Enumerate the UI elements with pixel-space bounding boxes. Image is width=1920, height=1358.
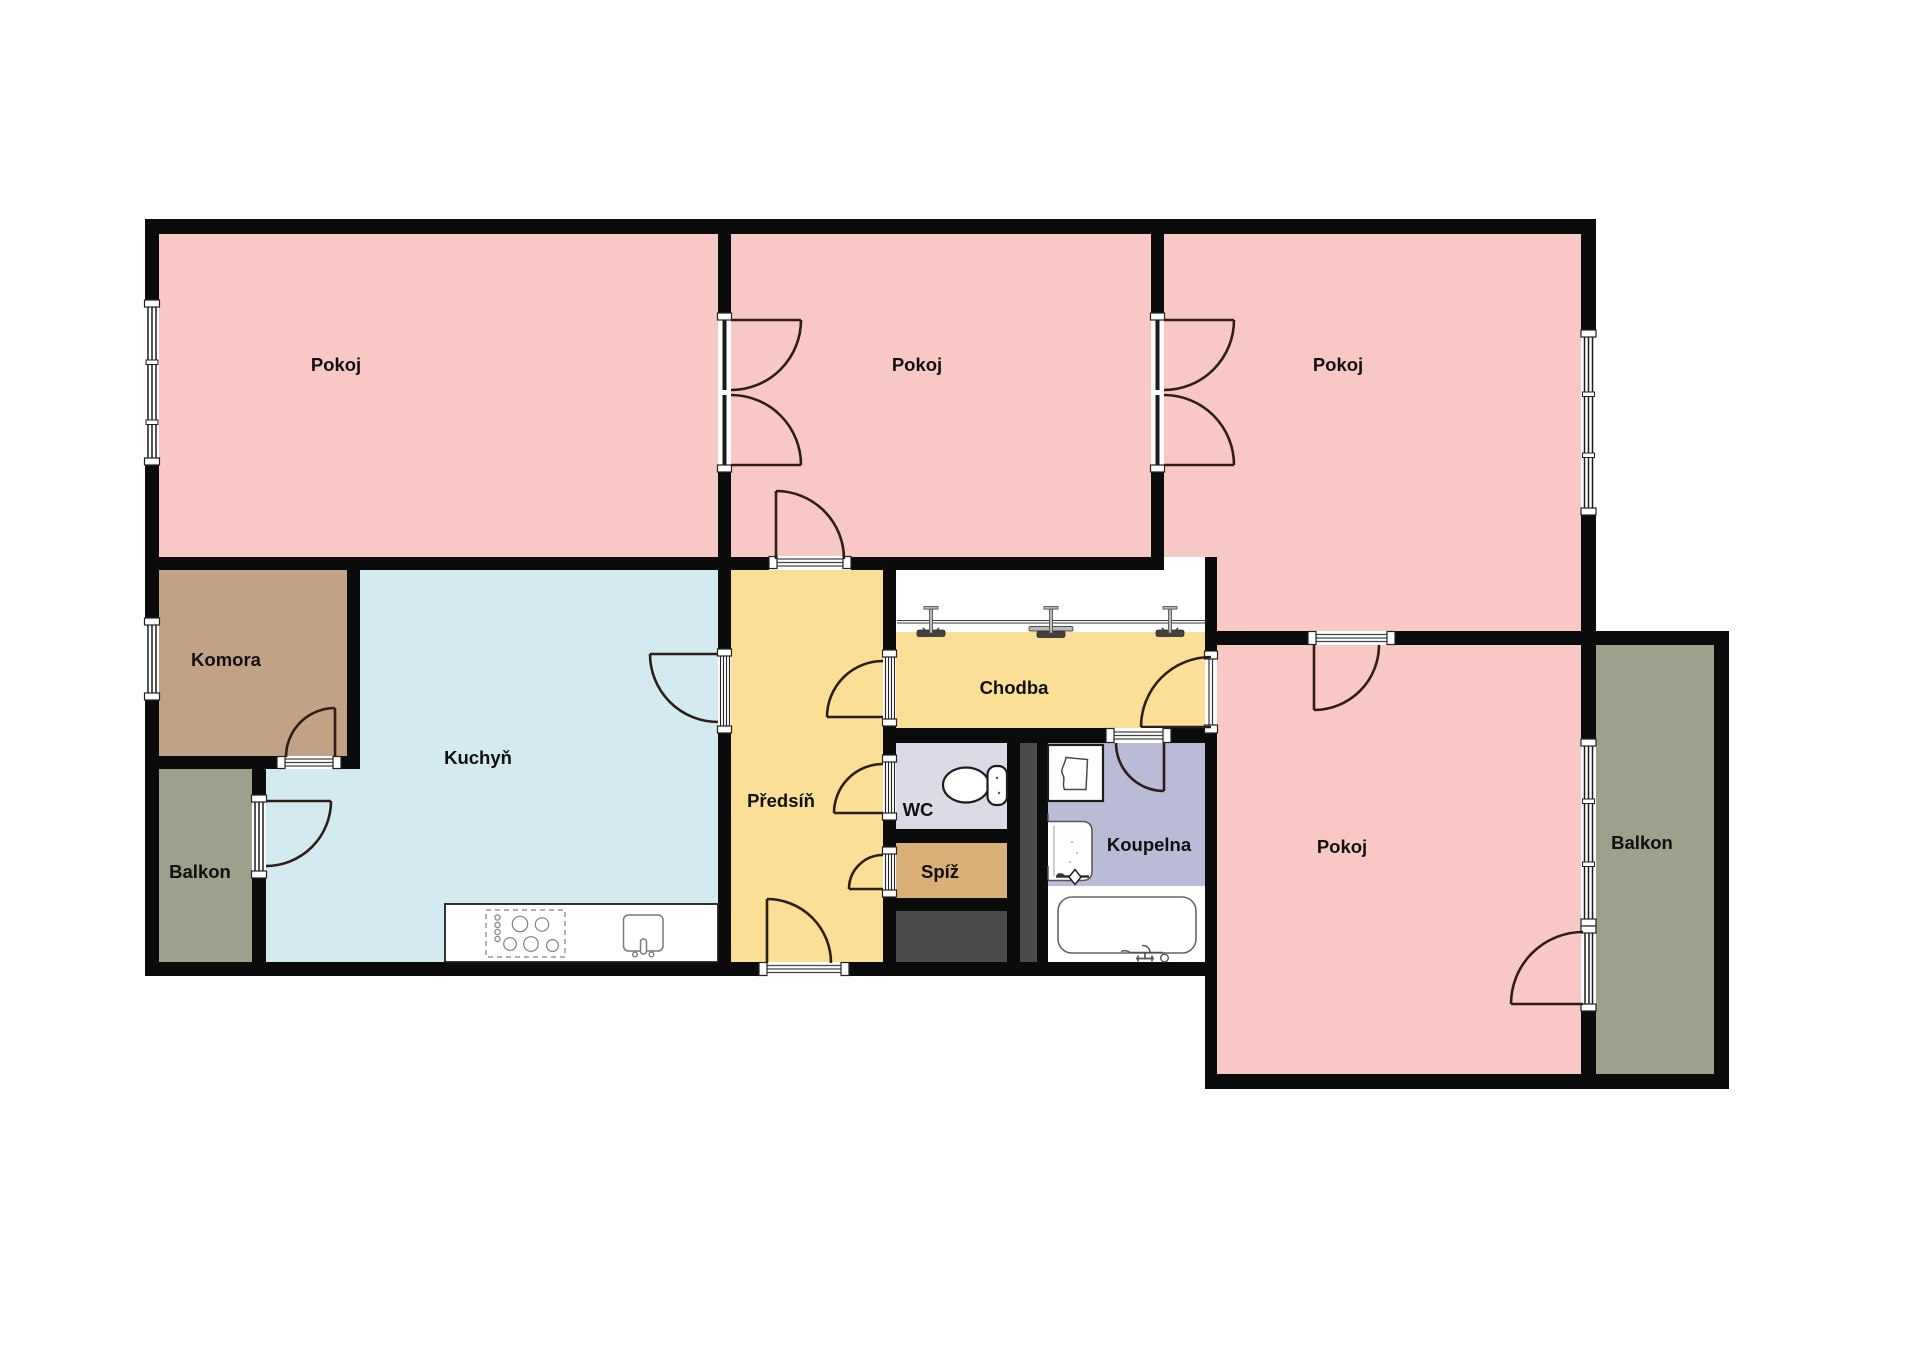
svg-text:Koupelna: Koupelna	[1107, 834, 1192, 855]
svg-text:Balkon: Balkon	[169, 861, 231, 882]
svg-text:WC: WC	[903, 799, 934, 820]
svg-text:Chodba: Chodba	[980, 677, 1050, 698]
svg-text:Komora: Komora	[191, 649, 262, 670]
svg-text:Pokoj: Pokoj	[311, 354, 361, 375]
svg-text:Pokoj: Pokoj	[1313, 354, 1363, 375]
svg-text:Předsíň: Předsíň	[747, 790, 815, 811]
svg-text:Kuchyň: Kuchyň	[444, 747, 512, 768]
svg-text:Balkon: Balkon	[1611, 832, 1673, 853]
svg-text:Pokoj: Pokoj	[1317, 836, 1367, 857]
svg-text:Pokoj: Pokoj	[892, 354, 942, 375]
svg-text:Spíž: Spíž	[921, 861, 959, 882]
